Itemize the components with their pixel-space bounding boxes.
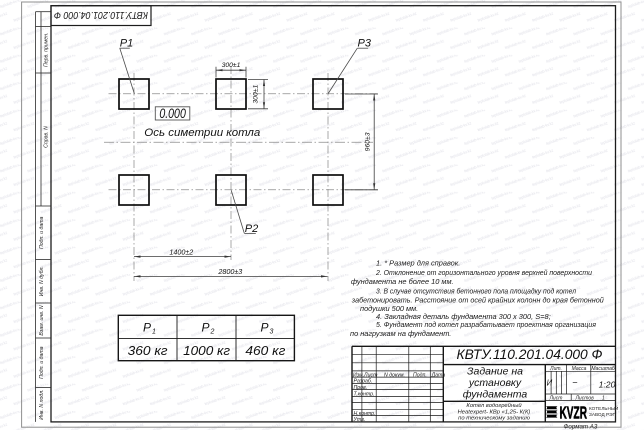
svg-text:Задание на: Задание на	[467, 366, 523, 378]
svg-text:Инв. N дубл.: Инв. N дубл.	[39, 266, 45, 296]
svg-text:КВТУ.110.201.04.000 Ф: КВТУ.110.201.04.000 Ф	[54, 9, 148, 21]
svg-text:2800±3: 2800±3	[217, 267, 242, 276]
svg-text:3. В случае отсутствия бетонно: 3. В случае отсутствия бетонного пола пл…	[376, 286, 577, 295]
svg-text:установку: установку	[468, 377, 522, 389]
svg-text:960±3: 960±3	[364, 132, 371, 151]
svg-text:2: 2	[210, 329, 215, 336]
svg-text:ЗАВОД РЭП: ЗАВОД РЭП	[589, 412, 616, 417]
svg-text:Разраб.: Разраб.	[354, 379, 373, 385]
svg-text:Утв.: Утв.	[354, 417, 366, 423]
svg-text:Р: Р	[202, 321, 210, 335]
svg-text:Подп. и дата: Подп. и дата	[39, 346, 45, 379]
svg-text:2. Отклонение от горизонтально: 2. Отклонение от горизонтального уровня …	[375, 268, 592, 277]
svg-text:Подп. и дата: Подп. и дата	[39, 216, 45, 249]
svg-text:Масштаб: Масштаб	[591, 366, 615, 372]
svg-text:И: И	[547, 379, 553, 388]
svg-text:КВТУ.110.201.04.000 Ф: КВТУ.110.201.04.000 Ф	[457, 347, 603, 362]
svg-text:N докум.: N докум.	[384, 372, 405, 378]
svg-text:фундамента: фундамента	[463, 388, 528, 400]
svg-text:забетонировать. Расстояние от: забетонировать. Расстояние от осей крайн…	[351, 295, 604, 304]
svg-text:300±1: 300±1	[253, 85, 260, 104]
svg-text:Инв. N подл.: Инв. N подл.	[39, 389, 45, 419]
svg-text:Взам. инв. N: Взам. инв. N	[39, 305, 45, 335]
svg-text:1. * Размер для справок.: 1. * Размер для справок.	[376, 258, 460, 267]
svg-text:Лист: Лист	[549, 395, 563, 401]
svg-text:Р: Р	[143, 321, 151, 335]
svg-text:Пров.: Пров.	[354, 385, 368, 391]
svg-text:фундамента не более 10 мм.: фундамента не более 10 мм.	[351, 277, 454, 286]
svg-text:KVZR: KVZR	[560, 403, 588, 423]
svg-text:1:20: 1:20	[599, 380, 616, 390]
svg-text:1: 1	[152, 329, 156, 336]
svg-text:КОТЕЛЬНЫЙ: КОТЕЛЬНЫЙ	[589, 404, 618, 411]
svg-text:Лит.: Лит.	[549, 366, 562, 372]
svg-text:Н.контр.: Н.контр.	[354, 411, 376, 417]
svg-text:Р2: Р2	[245, 223, 258, 235]
svg-text:по нагрузкам на фундамент.: по нагрузкам на фундамент.	[350, 329, 451, 338]
svg-text:Ось симетрии котла: Ось симетрии котла	[144, 127, 260, 139]
svg-text:Изм.Лист: Изм.Лист	[353, 372, 378, 378]
svg-text:1400±2: 1400±2	[169, 247, 193, 256]
svg-text:Дата: Дата	[431, 372, 446, 378]
svg-text:Перв. примен.: Перв. примен.	[44, 33, 50, 67]
svg-text:Котел водогрейный: Котел водогрейный	[466, 402, 522, 409]
svg-text:Р3: Р3	[358, 38, 372, 50]
svg-text:1: 1	[602, 395, 605, 401]
svg-text:1000 кг: 1000 кг	[183, 343, 231, 358]
svg-text:Масса: Масса	[572, 366, 587, 372]
svg-text:300±1: 300±1	[222, 62, 241, 69]
svg-text:Листов: Листов	[575, 395, 595, 401]
svg-text:460 кг: 460 кг	[245, 343, 286, 358]
svg-text:Формат А3: Формат А3	[563, 423, 597, 430]
svg-text:Р1: Р1	[120, 38, 133, 50]
svg-text:Подп.: Подп.	[413, 372, 427, 378]
svg-text:Р: Р	[261, 321, 269, 335]
svg-text:360 кг: 360 кг	[128, 343, 169, 358]
svg-text:Т.контр.: Т.контр.	[354, 391, 375, 397]
svg-text:Справ. N: Справ. N	[44, 126, 50, 148]
svg-text:–: –	[572, 378, 578, 387]
svg-text:3: 3	[270, 329, 274, 336]
svg-text:по техническому заданию: по техническому заданию	[458, 415, 530, 421]
svg-text:0.000: 0.000	[159, 106, 186, 121]
